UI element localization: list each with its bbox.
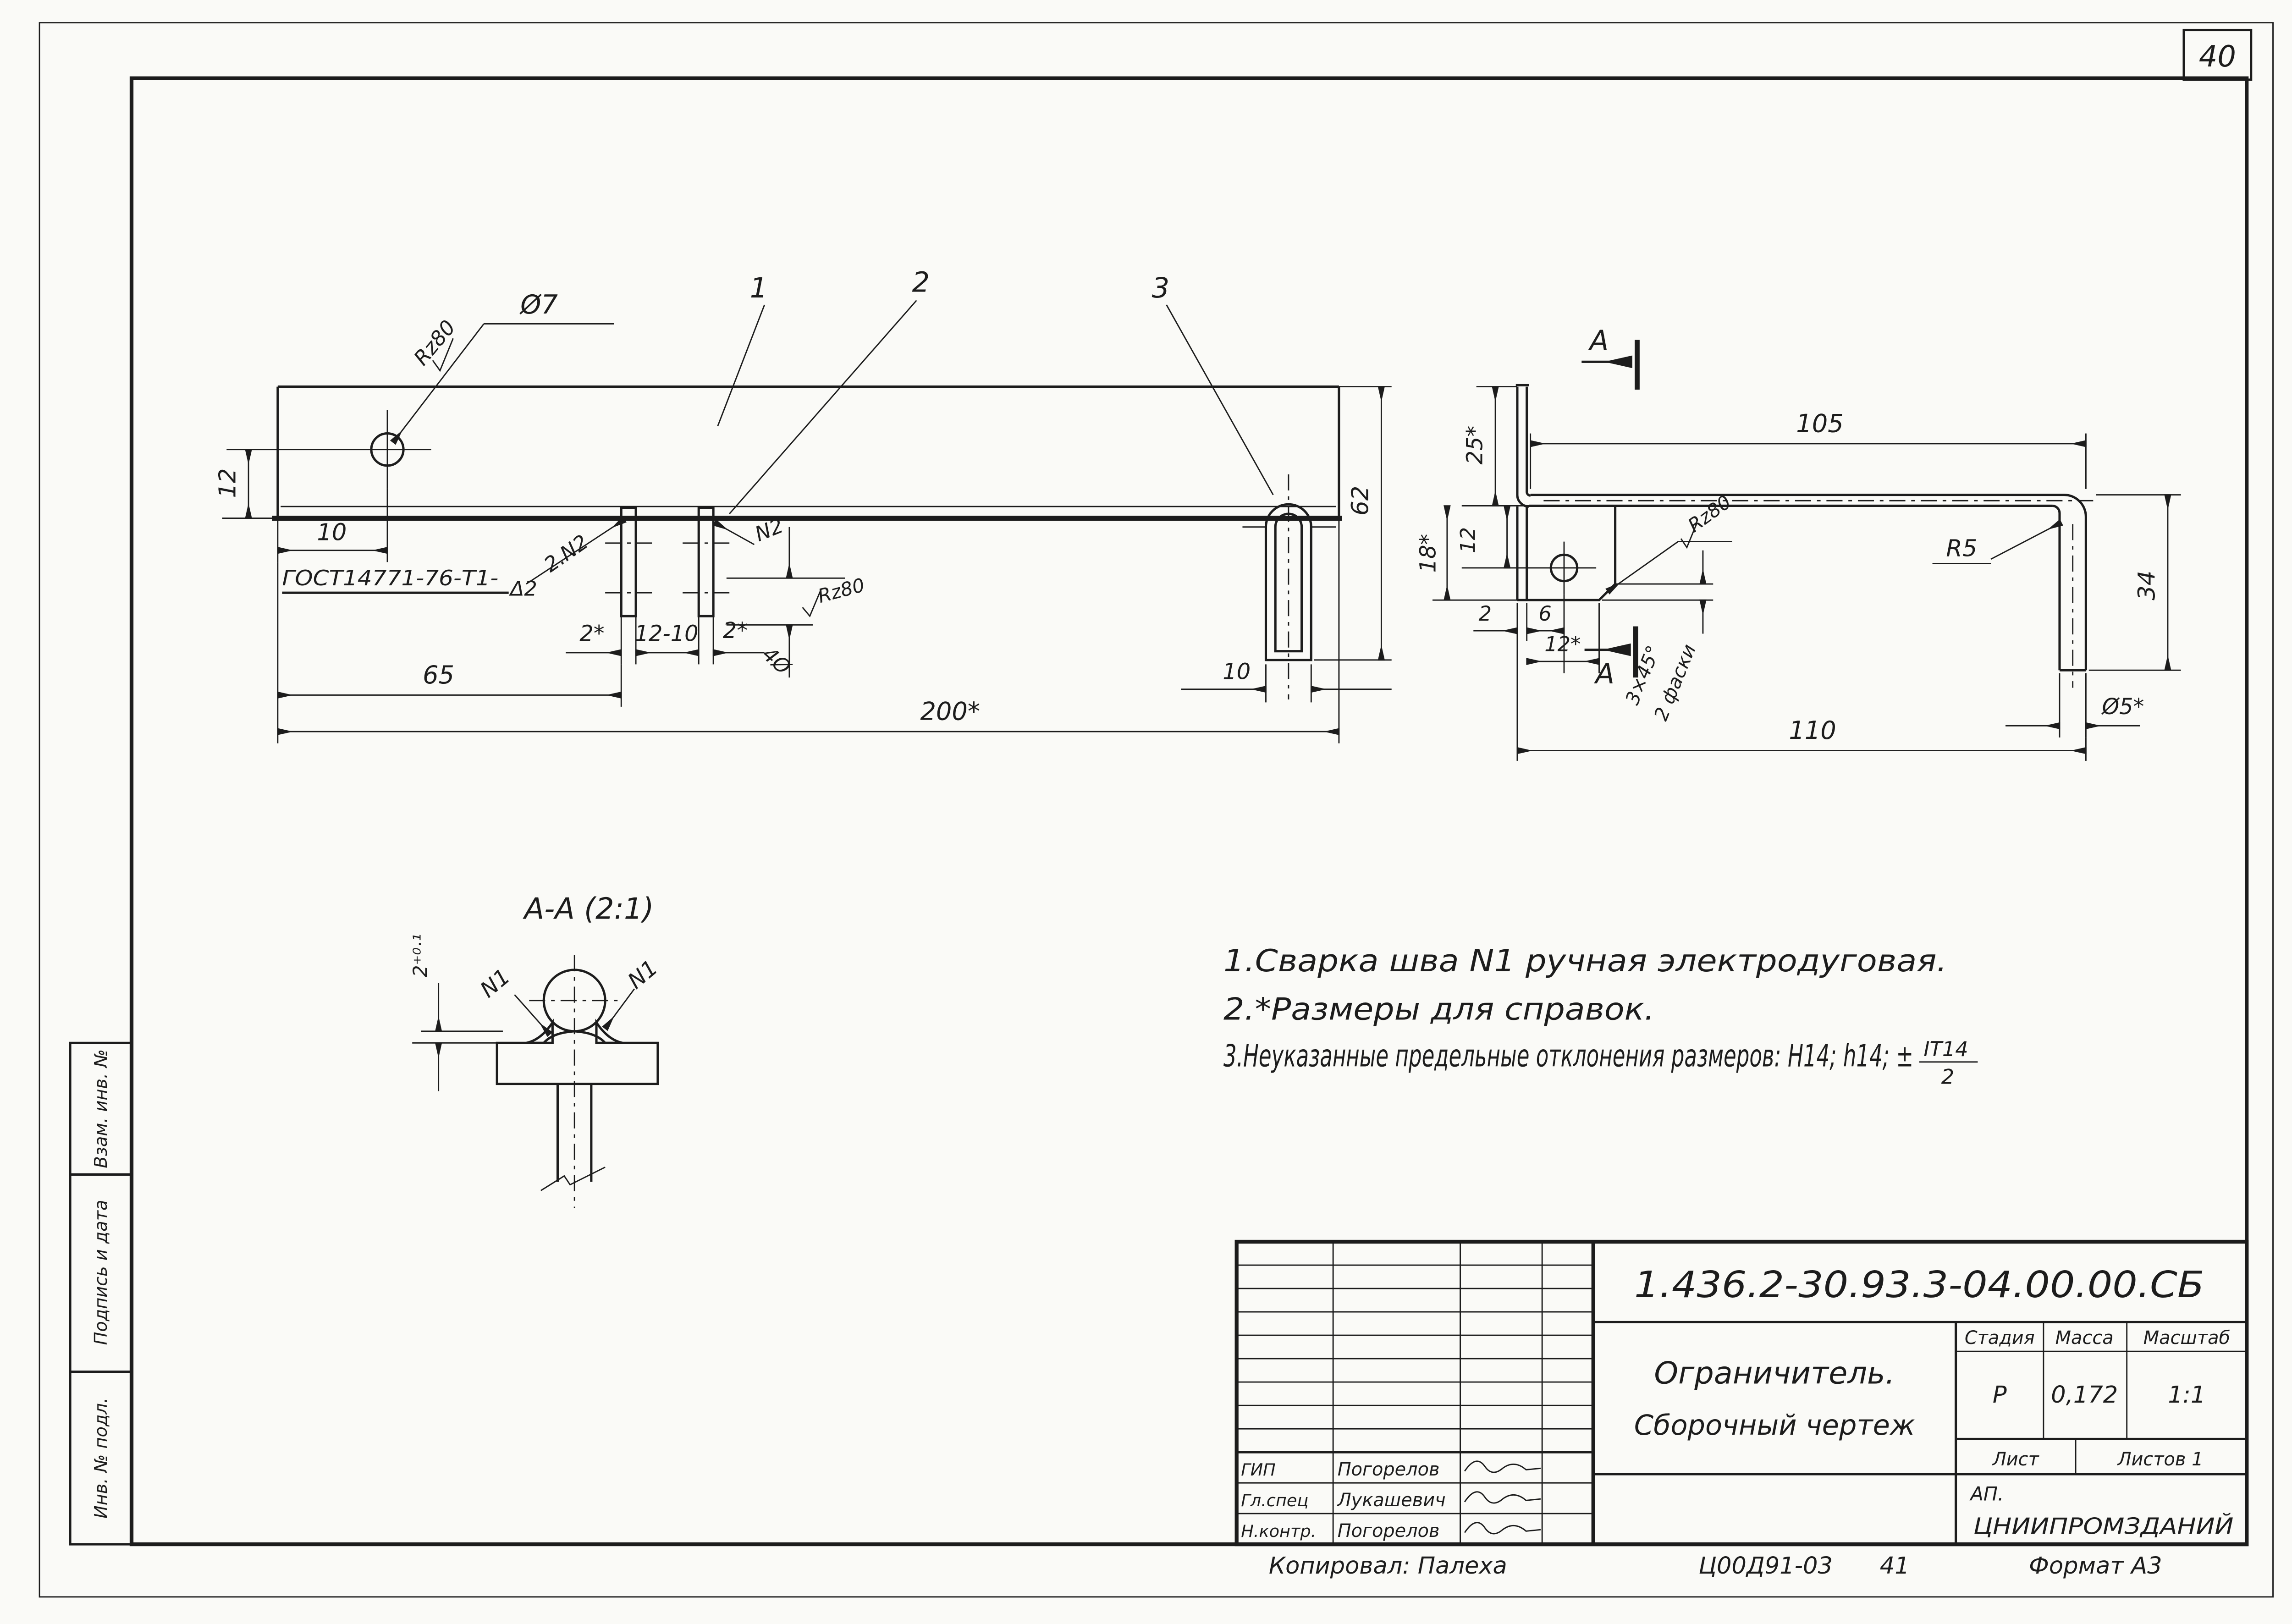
format-note: Формат А3 [2029,1552,2162,1580]
note-3-frac-num: IT14 [1923,1037,1968,1061]
weld-gost-label: ГОСТ14771-76-Т1- [282,566,498,590]
org-prefix: АП. [1969,1483,2004,1505]
dim-25: 25* [1462,426,1488,465]
dim-dia5: Ø5* [2101,694,2144,720]
note-3-frac-den: 2 [1941,1065,1954,1089]
drawing-sheet: 40 Взам. инв. № Подпись и дата Инв. № по… [0,0,2292,1624]
dim-200: 200* [920,697,980,726]
signature-glspec [1465,1492,1541,1503]
weld-n1-left: N1 [476,964,515,1003]
hole-roughness-label: Rz80 [409,316,460,370]
org-name: ЦНИИПРОМЗДАНИЙ [1973,1513,2234,1540]
dim-hook-10: 10 [1223,659,1251,684]
pin-roughness-label: Rz80 [815,574,867,607]
doc-title-line2: Сборочный чертеж [1634,1409,1915,1442]
notch-depth-label: 2⁺⁰·¹ [409,934,431,977]
dim-65: 65 [423,661,454,689]
notes: 1.Сварка шва N1 ручная электродуговая. 2… [1223,943,1978,1089]
note-2: 2.*Размеры для справок. [1223,991,1655,1027]
section-title: А-А (2:1) [523,892,654,926]
dim-12s: 12* [1544,633,1581,656]
dim-r5: R5 [1946,535,1977,562]
strip-cell-vzam: Взам. инв. № [91,1049,111,1168]
sig-name-nkontr: Погорелов [1338,1520,1440,1541]
signature-nkontr [1465,1523,1541,1534]
copied-by: Копировал: Палеха [1269,1552,1507,1580]
dim-pin-right: 2* [723,618,748,644]
dim-pin-span: 12-10 [635,621,699,646]
sig-role-glspec: Гл.спец [1241,1491,1308,1510]
sig-name-gip: Погорелов [1338,1459,1440,1480]
mass-label: Масса [2055,1327,2114,1349]
dim-10: 10 [317,519,347,546]
doc-code-sheet: 41 [1880,1552,1910,1580]
weld-symbol: Δ2 [509,577,537,601]
footer: Копировал: Палеха Ц00Д91-03 41 Формат А3 [1269,1552,2162,1580]
title-block: ГИП Погорелов Гл.спец Лукашевич Н.контр.… [1237,1242,2247,1544]
side-strip: Взам. инв. № Подпись и дата Инв. № подл. [70,1043,132,1544]
note-1: 1.Сварка шва N1 ручная электродуговая. [1223,943,1947,979]
signature-gip [1465,1461,1541,1472]
doc-title-line1: Ограничитель. [1654,1355,1895,1391]
section-view: А-А (2:1) N1 N1 2⁺⁰·¹ [409,892,663,1208]
dim-12: 12 [214,468,241,498]
mass-value: 0,172 [2051,1382,2118,1409]
chamfer-roughness-label: Rz80 [1684,491,1735,537]
scale-value: 1:1 [2168,1382,2205,1409]
dim-105: 105 [1796,409,1843,438]
strip-cell-inv: Инв. № подл. [91,1398,111,1519]
sheet-frame: 40 [39,23,2273,1597]
hole-diameter-label: Ø7 [519,289,558,320]
sig-name-glspec: Лукашевич [1337,1490,1446,1511]
strip-cell-podpis: Подпись и дата [91,1200,111,1345]
dim-34: 34 [2133,571,2160,600]
plan-view: Rz80 Ø7 12 10 ГОСТ14771-76-Т1- Δ2 2.N2 N… [214,266,1391,743]
dim-2: 2 [1479,602,1492,626]
section-mark-top: А [1588,325,1609,357]
section-mark-bottom: А [1594,658,1614,690]
scale-label: Масштаб [2143,1327,2230,1349]
dim-18: 18* [1416,534,1441,573]
sheet-label: Лист [1992,1449,2040,1470]
sig-role-gip: ГИП [1241,1460,1275,1480]
sheets-label: Листов 1 [2117,1449,2204,1470]
doc-code: Ц00Д91-03 [1698,1552,1833,1580]
dim-6: 6 [1538,602,1551,626]
callout-2: 2 [912,266,930,298]
callout-1: 1 [750,272,768,304]
dim-62: 62 [1347,486,1374,516]
stage-value: Р [1993,1382,2007,1409]
sig-role-nkontr: Н.контр. [1241,1521,1316,1541]
note-3: 3.Неуказанные предельные отклонения разм… [1223,1038,1913,1073]
dim-110: 110 [1789,716,1836,745]
callout-3: 3 [1152,272,1170,304]
weld-n1-right: N1 [623,955,663,994]
sheet-number: 40 [2199,40,2236,74]
side-view: 25* 18* 12 2 6 12* Rz80 3×45° 2 фаски [1416,325,2181,761]
dim-12-side: 12 [1456,527,1480,553]
dim-pin-dia: 4Ø [758,642,796,680]
dim-pin-left: 2* [579,621,604,646]
stage-label: Стадия [1965,1327,2035,1349]
doc-number: 1.436.2-30.93.3-04.00.00.СБ [1634,1263,2204,1306]
